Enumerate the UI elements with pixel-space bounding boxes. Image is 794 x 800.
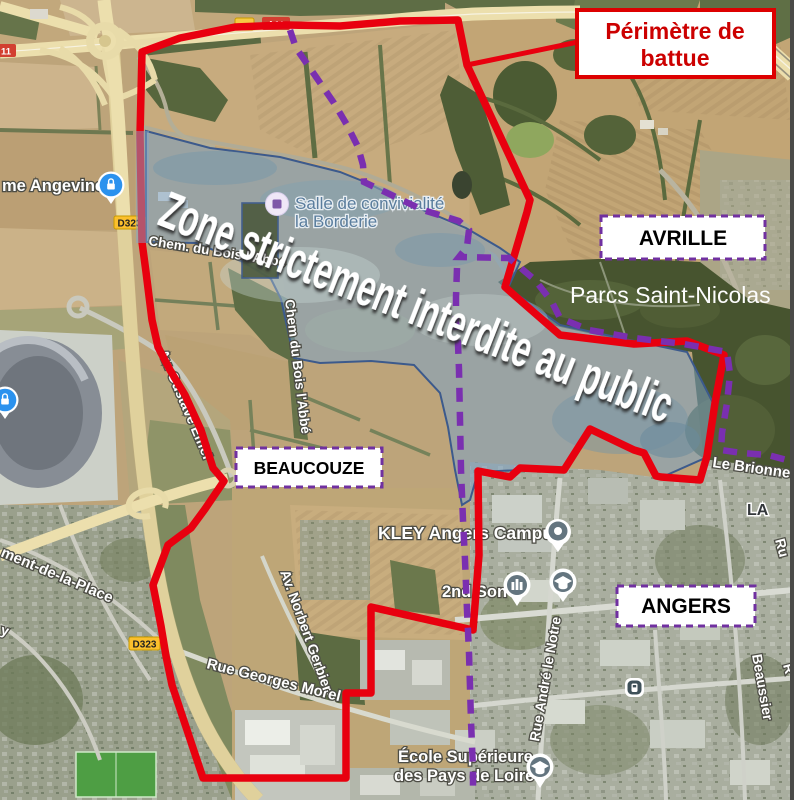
svg-text:BEAUCOUZE: BEAUCOUZE (254, 458, 365, 478)
svg-text:des Pays de Loire: des Pays de Loire (394, 767, 534, 785)
svg-text:AVRILLE: AVRILLE (639, 227, 727, 250)
svg-text:Salle de convivialité: Salle de convivialité (295, 194, 444, 213)
svg-text:École Supérieure: École Supérieure (398, 747, 533, 766)
svg-text:Périmètre de: Périmètre de (605, 18, 744, 44)
svg-text:me Angevine: me Angevine (2, 177, 104, 195)
svg-text:LA: LA (747, 502, 769, 519)
svg-text:D323: D323 (133, 640, 157, 651)
svg-text:Parcs Saint-Nicolas: Parcs Saint-Nicolas (570, 282, 771, 308)
svg-text:battue: battue (641, 45, 710, 71)
svg-text:11: 11 (1, 47, 12, 58)
svg-text:ANGERS: ANGERS (641, 595, 731, 618)
svg-text:la Borderie: la Borderie (295, 212, 377, 231)
svg-text:KLEY Angers Campus: KLEY Angers Campus (378, 523, 563, 543)
